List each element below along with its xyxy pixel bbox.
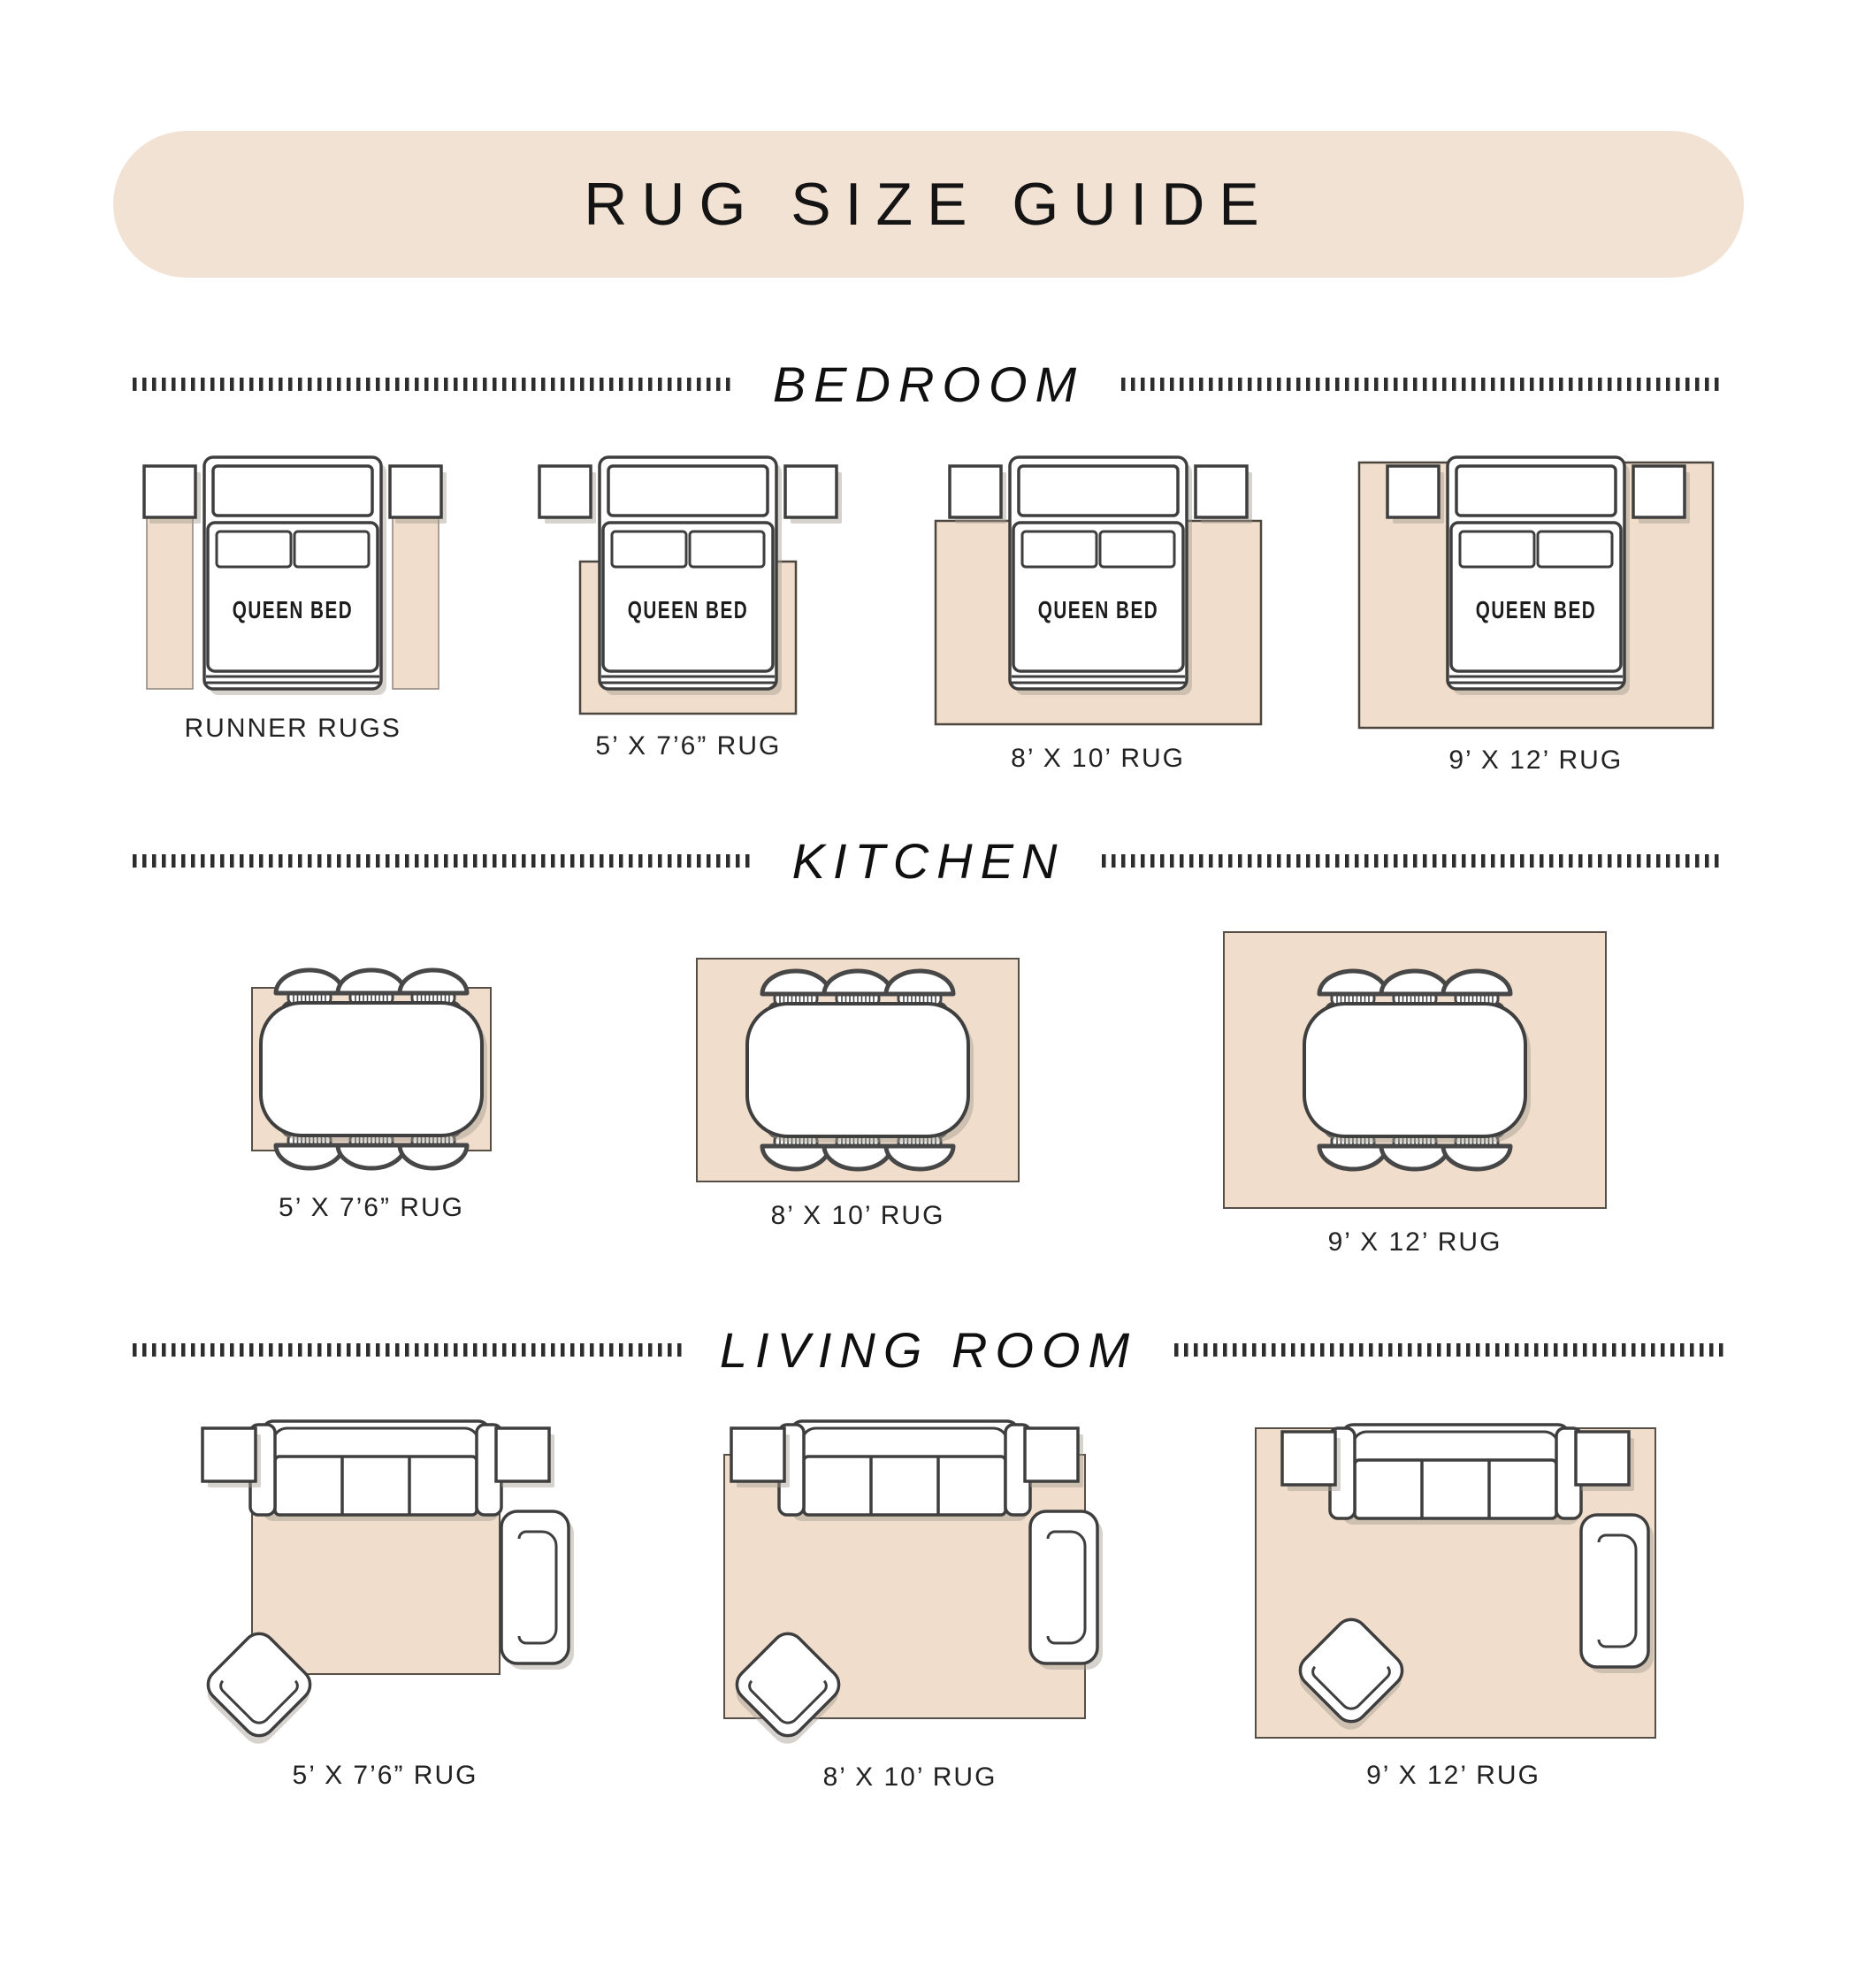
diagram-row: QUEEN BED RUNNER RUGS QUEEN BED 5’ X 7’6… [0,452,1857,776]
queen-bed-label: QUEEN BED [628,597,748,624]
side-table [203,1428,256,1481]
sofa [779,1421,1030,1515]
bedroom-8x10-diagram: QUEEN BED 8’ X 10’ RUG [928,452,1268,774]
living-9x12-illustration [1247,1414,1661,1748]
queen-bed-label: QUEEN BED [233,597,353,624]
chaise-lounge [1030,1511,1097,1663]
rug-size-label: 5’ X 7’6” RUG [279,1193,464,1223]
bedroom-runner-diagram: QUEEN BED RUNNER RUGS [137,452,448,744]
dotted-divider [133,1343,683,1357]
kitchen-9x12-illustration [1217,925,1613,1215]
runner-rug [393,510,439,689]
nightstand [144,466,195,517]
living-9x12-diagram: 9’ X 12’ RUG [1247,1414,1661,1791]
dotted-divider [133,854,755,868]
chaise-lounge [1581,1515,1648,1667]
section-title: KITCHEN [792,832,1066,890]
nightstand [1387,466,1439,517]
sofa [250,1421,501,1515]
dotted-divider [1121,378,1724,391]
rug-size-label: 8’ X 10’ RUG [771,1201,945,1231]
section-title: LIVING ROOM [720,1321,1137,1379]
bedroom-runner-illustration: QUEEN BED [137,452,448,701]
section-header: KITCHEN [133,832,1724,890]
nightstand [785,466,837,517]
queen-bed [1010,457,1187,689]
dining-table [261,1003,482,1135]
rug-size-label: 9’ X 12’ RUG [1366,1761,1540,1791]
queen-bed [1448,457,1624,689]
rug-size-label: 9’ X 12’ RUG [1328,1227,1502,1258]
sections-container: BEDROOM QUEEN BED RUNNER RUGS QUEEN BED … [0,356,1857,1793]
living-8x10-diagram: 8’ X 10’ RUG [717,1414,1103,1793]
nightstand [1196,466,1247,517]
kitchen-8x10-diagram: 8’ X 10’ RUG [690,952,1026,1231]
kitchen-5x76-illustration [244,960,499,1181]
side-table [496,1428,549,1481]
diagram-row: 5’ X 7’6” RUG 8’ X 10’ RUG [0,925,1857,1258]
side-table [1576,1432,1629,1485]
side-table [1282,1432,1335,1485]
nightstand [950,466,1001,517]
side-table [1025,1428,1078,1481]
section-header: BEDROOM [133,356,1724,413]
nightstand [539,466,591,517]
rug-size-label: 9’ X 12’ RUG [1448,745,1623,776]
rug-size-label: 8’ X 10’ RUG [823,1762,997,1793]
kitchen-9x12-diagram: 9’ X 12’ RUG [1217,925,1613,1258]
rug-size-label: 8’ X 10’ RUG [1011,744,1185,774]
queen-bed-label: QUEEN BED [1037,597,1158,624]
title-banner: RUG SIZE GUIDE [113,131,1744,278]
kitchen-8x10-illustration [690,952,1026,1189]
side-table [731,1428,784,1481]
bedroom-8x10-illustration: QUEEN BED [928,452,1268,731]
bedroom-9x12-illustration: QUEEN BED [1352,452,1720,733]
chaise-lounge [501,1511,569,1663]
living-8x10-illustration [717,1414,1103,1750]
runner-rug [147,510,193,689]
nightstand [1633,466,1685,517]
dotted-divider [1102,854,1724,868]
living-5x76-diagram: 5’ X 7’6” RUG [197,1414,574,1791]
dotted-divider [133,378,736,391]
section-living: LIVING ROOM 5’ X 7’6” RUG [0,1321,1857,1793]
dining-table [747,1004,968,1136]
kitchen-5x76-diagram: 5’ X 7’6” RUG [244,960,499,1223]
section-kitchen: KITCHEN 5’ X 7’6” RUG [0,832,1857,1258]
rug-size-guide-page: RUG SIZE GUIDE BEDROOM QUEEN BED RUNNER … [0,131,1857,1793]
queen-bed [204,457,381,689]
dining-table [1304,1004,1525,1136]
rug-size-label: RUNNER RUGS [185,714,401,744]
queen-bed-label: QUEEN BED [1476,597,1596,624]
bedroom-9x12-diagram: QUEEN BED 9’ X 12’ RUG [1352,452,1720,776]
living-5x76-illustration [197,1414,574,1748]
rug-size-label: 5’ X 7’6” RUG [293,1761,478,1791]
diagram-row: 5’ X 7’6” RUG 8’ X 10’ RUG [0,1414,1857,1793]
bedroom-5x76-illustration: QUEEN BED [532,452,844,719]
section-bedroom: BEDROOM QUEEN BED RUNNER RUGS QUEEN BED … [0,356,1857,776]
dotted-divider [1174,1343,1724,1357]
page-title: RUG SIZE GUIDE [584,170,1272,239]
nightstand [390,466,441,517]
section-title: BEDROOM [773,356,1084,413]
section-header: LIVING ROOM [133,1321,1724,1379]
sofa [1330,1425,1581,1518]
queen-bed [600,457,776,689]
rug-size-label: 5’ X 7’6” RUG [595,731,781,761]
bedroom-5x76-diagram: QUEEN BED 5’ X 7’6” RUG [532,452,844,761]
